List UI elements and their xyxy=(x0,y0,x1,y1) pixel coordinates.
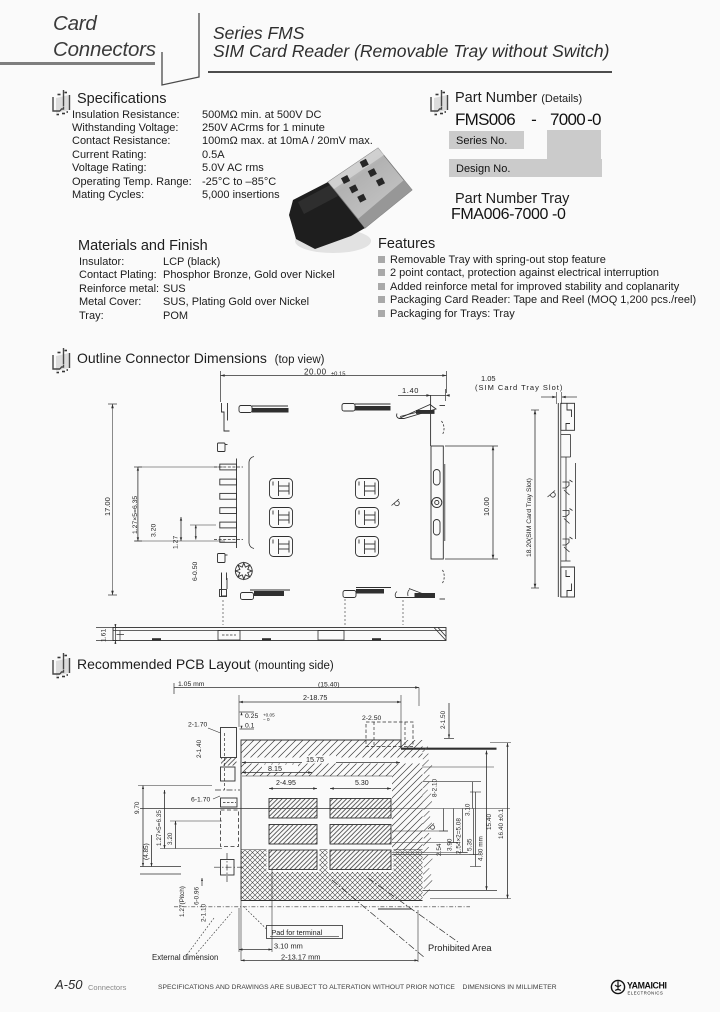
svg-text:10.00: 10.00 xyxy=(482,497,491,516)
svg-text:1.27×5=6.35: 1.27×5=6.35 xyxy=(132,496,139,534)
svg-text:2-2.50: 2-2.50 xyxy=(362,715,381,722)
svg-text:18.20(SIM Card Tray Slot): 18.20(SIM Card Tray Slot) xyxy=(526,478,533,557)
svg-text:17.00: 17.00 xyxy=(103,497,112,516)
svg-text:1.40: 1.40 xyxy=(402,386,419,395)
svg-text:0.1: 0.1 xyxy=(245,723,255,730)
svg-text:15.75: 15.75 xyxy=(306,755,324,764)
svg-text:3.20: 3.20 xyxy=(151,524,158,537)
svg-text:3.10: 3.10 xyxy=(465,803,472,816)
svg-text:(4.85): (4.85) xyxy=(143,843,150,860)
svg-text:1.05: 1.05 xyxy=(481,374,496,383)
svg-text:6-0.50: 6-0.50 xyxy=(192,562,199,581)
svg-text:20.00: 20.00 xyxy=(304,368,327,377)
svg-text:2-13.17 mm: 2-13.17 mm xyxy=(281,953,320,962)
svg-text:8.15: 8.15 xyxy=(268,764,282,773)
svg-text:Prohibited Area: Prohibited Area xyxy=(428,943,492,953)
svg-text:3.20: 3.20 xyxy=(167,832,174,845)
svg-text:External dimension: External dimension xyxy=(152,953,218,962)
svg-text:1.61: 1.61 xyxy=(101,629,108,642)
svg-text:1.27(Pitch): 1.27(Pitch) xyxy=(179,886,186,917)
svg-text:− 0: − 0 xyxy=(263,717,270,722)
svg-text:2-1.40: 2-1.40 xyxy=(196,739,203,758)
svg-text:5.30: 5.30 xyxy=(355,780,369,787)
svg-text:6-0.96: 6-0.96 xyxy=(194,886,201,905)
svg-text:Pad for terminal: Pad for terminal xyxy=(272,928,323,937)
svg-text:2-1.10: 2-1.10 xyxy=(201,903,208,922)
svg-text:5.35: 5.35 xyxy=(467,838,474,851)
svg-text:0.25: 0.25 xyxy=(245,713,258,720)
svg-text:ELECTRONICS: ELECTRONICS xyxy=(628,991,664,996)
svg-text:15.40: 15.40 xyxy=(486,814,493,830)
svg-text:4.80 mm: 4.80 mm xyxy=(478,836,485,861)
svg-text:3.90: 3.90 xyxy=(447,838,454,851)
svg-text:2-1.50: 2-1.50 xyxy=(440,710,447,729)
svg-text:2-18.75: 2-18.75 xyxy=(303,693,327,702)
svg-text:1.05 mm: 1.05 mm xyxy=(178,681,205,688)
svg-text:2.54×2=5.08: 2.54×2=5.08 xyxy=(456,818,463,854)
svg-text:16.40 ±0.1: 16.40 ±0.1 xyxy=(498,808,505,839)
svg-text:8-2.10: 8-2.10 xyxy=(432,778,439,797)
svg-text:±0.15: ±0.15 xyxy=(331,372,345,378)
svg-text:3.10 mm: 3.10 mm xyxy=(274,942,303,951)
svg-text:2.54: 2.54 xyxy=(436,843,443,856)
svg-text:YAMAICHI: YAMAICHI xyxy=(627,981,667,991)
svg-text:(15.40): (15.40) xyxy=(318,682,340,689)
svg-text:(SIM Card Tray Slot): (SIM Card Tray Slot) xyxy=(475,383,563,392)
svg-text:2-4.95: 2-4.95 xyxy=(276,780,296,787)
svg-text:6-1.70: 6-1.70 xyxy=(191,797,210,804)
svg-text:1.27: 1.27 xyxy=(173,536,180,549)
svg-text:9.70: 9.70 xyxy=(134,801,141,814)
svg-text:1.27×5=6.35: 1.27×5=6.35 xyxy=(156,810,163,846)
svg-text:2-1.70: 2-1.70 xyxy=(188,722,207,729)
